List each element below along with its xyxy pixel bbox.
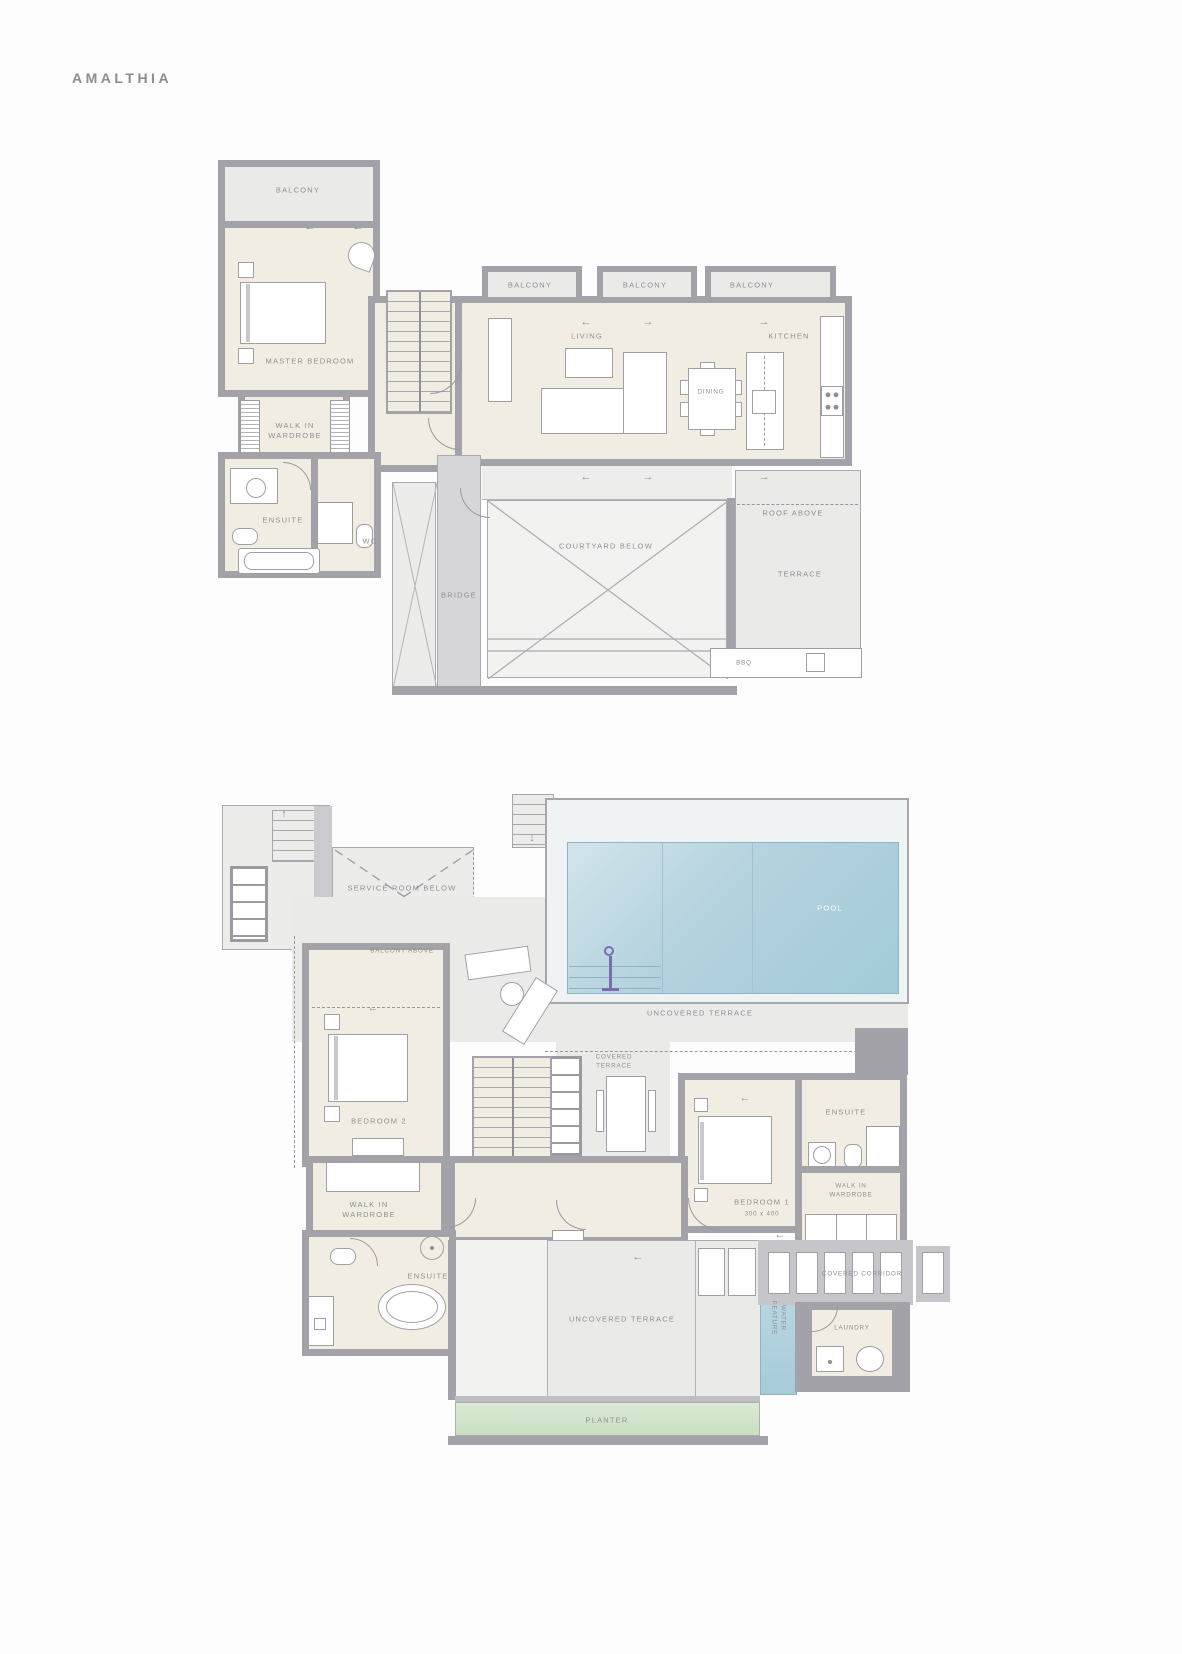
slide-direction-arrow: → bbox=[759, 471, 770, 483]
nightstand-icon bbox=[694, 1098, 708, 1112]
stepping-stone-icon bbox=[768, 1252, 790, 1294]
wall-segment bbox=[448, 1436, 768, 1445]
label-walk-in-wardrobe-1: WALK IN WARDROBE bbox=[829, 1183, 872, 1200]
stepping-stone-icon bbox=[922, 1252, 944, 1294]
label-pool: POOL bbox=[817, 904, 843, 913]
washing-machine-icon bbox=[856, 1346, 884, 1372]
pool-handrail-icon bbox=[604, 946, 614, 956]
covered-area-dash-line bbox=[545, 1051, 907, 1052]
label-dining: DINING bbox=[698, 389, 725, 396]
bed-2-icon bbox=[328, 1034, 408, 1102]
sofa-chaise-icon bbox=[623, 352, 667, 434]
label-laundry: LAUNDRY bbox=[834, 1325, 870, 1332]
courtyard-void bbox=[487, 500, 727, 678]
slide-direction-arrow: ← bbox=[305, 221, 316, 233]
label-balcony-above: BALCONY ABOVE bbox=[370, 948, 433, 955]
label-living: LIVING bbox=[571, 332, 603, 341]
slide-direction-arrow: ← bbox=[633, 1251, 644, 1263]
bbq-sink-icon bbox=[806, 653, 825, 672]
equipment-box-icon bbox=[698, 1248, 725, 1296]
sink-drain-dot bbox=[828, 1360, 832, 1364]
chair-icon bbox=[596, 1090, 604, 1132]
label-planter: PLANTER bbox=[586, 1416, 629, 1425]
label-terrace: TERRACE bbox=[778, 570, 822, 579]
coffee-table-icon bbox=[565, 348, 613, 378]
label-balcony-dining: BALCONY bbox=[623, 281, 667, 290]
label-bedroom-1-dim: 300 x 400 bbox=[745, 1211, 780, 1218]
label-wc: WC bbox=[363, 537, 378, 546]
roof-above-line bbox=[737, 504, 858, 505]
label-courtyard-below: COURTYARD BELOW bbox=[559, 542, 653, 551]
cooktop-icon bbox=[821, 386, 843, 416]
pool-lane-line bbox=[662, 843, 663, 993]
sink-icon bbox=[813, 1146, 831, 1164]
slide-direction-arrow: ← bbox=[353, 221, 364, 233]
dining-table-icon bbox=[688, 368, 736, 430]
bed-headboard-icon bbox=[246, 284, 250, 342]
label-roof-above: ROOF ABOVE bbox=[762, 509, 823, 518]
kitchen-sink-icon bbox=[752, 390, 776, 414]
label-master-bedroom: MASTER BEDROOM bbox=[266, 357, 355, 366]
label-balcony-kitchen: BALCONY bbox=[730, 281, 774, 290]
label-covered-terrace: COVERED TERRACE bbox=[596, 1054, 633, 1071]
bathtub-inner-icon bbox=[244, 552, 314, 570]
label-ensuite-master: ENSUITE bbox=[263, 516, 304, 525]
wall-segment bbox=[855, 1028, 908, 1075]
toilet-icon bbox=[844, 1144, 862, 1168]
slide-direction-arrow: → bbox=[643, 471, 654, 483]
terrace-storage-icon bbox=[548, 1056, 582, 1156]
label-balcony-living: BALCONY bbox=[508, 281, 552, 290]
walkway-strip bbox=[482, 466, 732, 500]
pool-steps-icon bbox=[569, 956, 661, 992]
pool-handrail-base bbox=[602, 988, 619, 991]
wardrobe-rack-icon bbox=[805, 1214, 897, 1242]
property-dash-line bbox=[294, 936, 295, 1168]
label-water-feature: WATER FEATURE bbox=[769, 1301, 788, 1336]
external-staircase bbox=[272, 810, 320, 862]
bbq-counter-icon bbox=[710, 648, 862, 678]
outdoor-table-icon bbox=[606, 1076, 646, 1152]
laundry-sink-icon bbox=[816, 1346, 844, 1372]
planter-shelf-icon bbox=[230, 866, 268, 942]
rack-divider bbox=[836, 1215, 837, 1241]
floor-plan-page: AMALTHIA bbox=[0, 0, 1182, 1654]
bed-headboard-icon bbox=[334, 1036, 338, 1100]
stepping-stone-icon bbox=[796, 1252, 818, 1294]
label-ensuite-2: ENSUITE bbox=[408, 1272, 449, 1281]
pool-lane-line bbox=[752, 843, 753, 993]
label-bedroom-1: BEDROOM 1 bbox=[734, 1198, 790, 1207]
bathtub-inner-icon bbox=[386, 1291, 438, 1323]
wall-segment bbox=[448, 1240, 456, 1400]
slide-direction-arrow: → bbox=[643, 316, 654, 328]
bed-1-icon bbox=[698, 1116, 772, 1184]
terrace-sub-panel bbox=[455, 1240, 548, 1398]
label-ensuite-1: ENSUITE bbox=[826, 1108, 867, 1117]
bed-headboard-icon bbox=[700, 1122, 704, 1180]
shower-icon bbox=[866, 1126, 900, 1168]
slide-direction-arrow: ← bbox=[581, 471, 592, 483]
tv-cabinet-icon bbox=[488, 318, 512, 402]
chair-icon bbox=[648, 1090, 656, 1132]
bed-master-icon bbox=[240, 282, 326, 344]
toilet-icon bbox=[232, 528, 258, 545]
label-balcony-master: BALCONY bbox=[276, 186, 320, 195]
nightstand-icon bbox=[324, 1014, 340, 1030]
label-bridge: BRIDGE bbox=[441, 591, 477, 600]
wardrobe-shelf-icon bbox=[326, 1162, 420, 1192]
rack-divider bbox=[866, 1215, 867, 1241]
label-bbq: BBQ bbox=[736, 660, 752, 667]
slide-direction-arrow: ← bbox=[368, 1002, 379, 1014]
nightstand-icon bbox=[324, 1106, 340, 1122]
nightstand-icon bbox=[238, 262, 254, 278]
wall-segment bbox=[392, 686, 737, 695]
drain-icon bbox=[314, 1318, 326, 1330]
slide-direction-arrow: ← bbox=[581, 316, 592, 328]
label-uncovered-terrace-bottom: UNCOVERED TERRACE bbox=[569, 1315, 675, 1324]
label-bedroom-2: BEDROOM 2 bbox=[351, 1117, 407, 1126]
stair-direction-arrow: ↓ bbox=[529, 832, 535, 844]
staircase-upper bbox=[386, 290, 452, 414]
bench-icon bbox=[352, 1138, 404, 1156]
room-terrace bbox=[735, 470, 861, 650]
label-walk-in-wardrobe-2: WALK IN WARDROBE bbox=[342, 1200, 396, 1220]
pool-handrail-post bbox=[609, 956, 612, 990]
label-uncovered-terrace-pool: UNCOVERED TERRACE bbox=[647, 1009, 753, 1018]
shower-icon bbox=[317, 502, 353, 544]
label-covered-corridor: COVERED CORRIDOR bbox=[822, 1271, 902, 1278]
label-walk-in-wardrobe-master: WALK IN WARDROBE bbox=[268, 421, 322, 441]
page-title: AMALTHIA bbox=[72, 70, 172, 86]
slide-direction-arrow: ← bbox=[775, 1229, 786, 1241]
label-kitchen: KITCHEN bbox=[768, 332, 809, 341]
slide-direction-arrow: ← bbox=[740, 1092, 751, 1104]
shower-head-dot bbox=[430, 1246, 434, 1250]
slide-direction-arrow: → bbox=[759, 316, 770, 328]
stair-direction-arrow: ↑ bbox=[281, 808, 287, 820]
void-strip bbox=[392, 482, 436, 688]
equipment-box-icon bbox=[728, 1248, 756, 1296]
sink-icon bbox=[246, 478, 266, 498]
terrace-divider bbox=[695, 1241, 696, 1398]
nightstand-icon bbox=[238, 348, 254, 364]
label-service-room-below: SERVICE ROOM BELOW bbox=[348, 884, 457, 893]
